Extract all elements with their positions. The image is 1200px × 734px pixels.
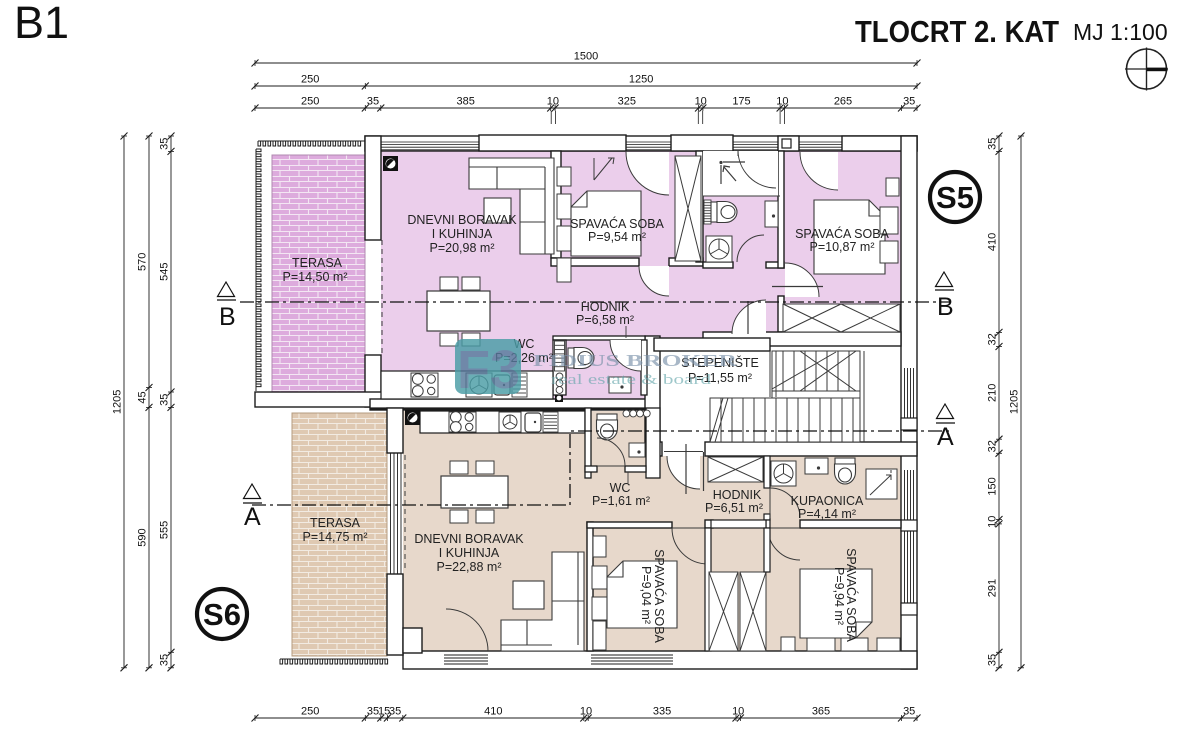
svg-text:P=9,94 m²: P=9,94 m² [832, 567, 846, 625]
svg-text:KUPAONICA: KUPAONICA [791, 494, 864, 508]
svg-text:MJ 1:100: MJ 1:100 [1073, 19, 1168, 45]
svg-text:P=22,88 m²: P=22,88 m² [437, 560, 502, 574]
svg-text:1500: 1500 [574, 51, 598, 63]
svg-text:SPAVAĆA SOBA: SPAVAĆA SOBA [652, 549, 667, 643]
svg-text:10: 10 [547, 96, 559, 108]
svg-text:P=20,98 m²: P=20,98 m² [430, 241, 495, 255]
svg-text:TERASA: TERASA [310, 516, 361, 530]
svg-text:545: 545 [159, 263, 171, 281]
svg-text:B1: B1 [14, 0, 69, 48]
svg-text:10: 10 [580, 706, 592, 718]
svg-text:35: 35 [987, 654, 999, 666]
svg-text:1205: 1205 [112, 390, 124, 414]
svg-text:35: 35 [389, 706, 401, 718]
svg-text:35: 35 [159, 654, 171, 666]
svg-text:385: 385 [457, 96, 475, 108]
svg-text:DNEVNI BORAVAK: DNEVNI BORAVAK [407, 213, 517, 227]
svg-text:590: 590 [137, 528, 149, 546]
svg-text:P=9,04 m²: P=9,04 m² [639, 566, 653, 624]
svg-text:TLOCRT 2. KAT: TLOCRT 2. KAT [855, 14, 1059, 49]
svg-text:325: 325 [618, 96, 636, 108]
svg-text:32: 32 [987, 440, 999, 452]
svg-text:291: 291 [987, 579, 999, 597]
svg-text:SPAVAĆA SOBA: SPAVAĆA SOBA [570, 216, 664, 231]
svg-text:10: 10 [776, 96, 788, 108]
svg-text:10: 10 [695, 96, 707, 108]
svg-text:175: 175 [732, 96, 750, 108]
svg-text:265: 265 [834, 96, 852, 108]
svg-text:F3: F3 [457, 340, 520, 400]
svg-text:410: 410 [987, 233, 999, 251]
svg-text:P=6,58 m²: P=6,58 m² [576, 313, 634, 327]
svg-text:S5: S5 [936, 180, 974, 215]
svg-text:250: 250 [301, 74, 319, 86]
svg-text:1250: 1250 [629, 74, 653, 86]
svg-text:1205: 1205 [1009, 390, 1021, 414]
svg-text:P=6,51 m²: P=6,51 m² [705, 501, 763, 515]
svg-text:32: 32 [987, 333, 999, 345]
svg-text:150: 150 [987, 477, 999, 495]
svg-text:TERASA: TERASA [292, 256, 343, 270]
svg-text:10: 10 [732, 706, 744, 718]
svg-text:210: 210 [987, 384, 999, 402]
svg-text:35: 35 [903, 96, 915, 108]
svg-text:365: 365 [812, 706, 830, 718]
svg-text:SPAVAĆA SOBA: SPAVAĆA SOBA [795, 226, 889, 241]
svg-text:335: 335 [653, 706, 671, 718]
svg-text:P=9,54 m²: P=9,54 m² [588, 230, 646, 244]
svg-text:HODNIK: HODNIK [581, 300, 630, 314]
svg-text:35: 35 [987, 138, 999, 150]
svg-text:FIDIUS BROKER: FIDIUS BROKER [533, 351, 738, 370]
svg-text:A: A [244, 503, 261, 531]
svg-text:570: 570 [137, 253, 149, 271]
svg-text:WC: WC [610, 481, 631, 495]
svg-text:B: B [219, 303, 236, 331]
svg-text:45: 45 [137, 391, 149, 403]
svg-text:S6: S6 [203, 597, 241, 632]
svg-text:P=14,75 m²: P=14,75 m² [303, 530, 368, 544]
svg-text:I KUHINJA: I KUHINJA [439, 546, 500, 560]
svg-text:250: 250 [301, 96, 319, 108]
svg-text:I KUHINJA: I KUHINJA [432, 227, 493, 241]
svg-text:410: 410 [484, 706, 502, 718]
svg-text:P=10,87 m²: P=10,87 m² [810, 240, 875, 254]
svg-text:P=4,14 m²: P=4,14 m² [798, 507, 856, 521]
svg-text:real estate & board: real estate & board [551, 372, 712, 388]
svg-text:35: 35 [367, 96, 379, 108]
svg-text:DNEVNI BORAVAK: DNEVNI BORAVAK [414, 532, 524, 546]
svg-text:P=14,50 m²: P=14,50 m² [283, 270, 348, 284]
svg-text:555: 555 [159, 521, 171, 539]
svg-text:A: A [937, 423, 954, 451]
svg-text:10: 10 [987, 516, 999, 528]
svg-text:35: 35 [903, 706, 915, 718]
svg-text:HODNIK: HODNIK [713, 488, 762, 502]
svg-text:35: 35 [159, 138, 171, 150]
svg-text:35: 35 [159, 394, 171, 406]
svg-text:P=1,61 m²: P=1,61 m² [592, 494, 650, 508]
svg-text:250: 250 [301, 706, 319, 718]
svg-text:B: B [937, 293, 954, 321]
